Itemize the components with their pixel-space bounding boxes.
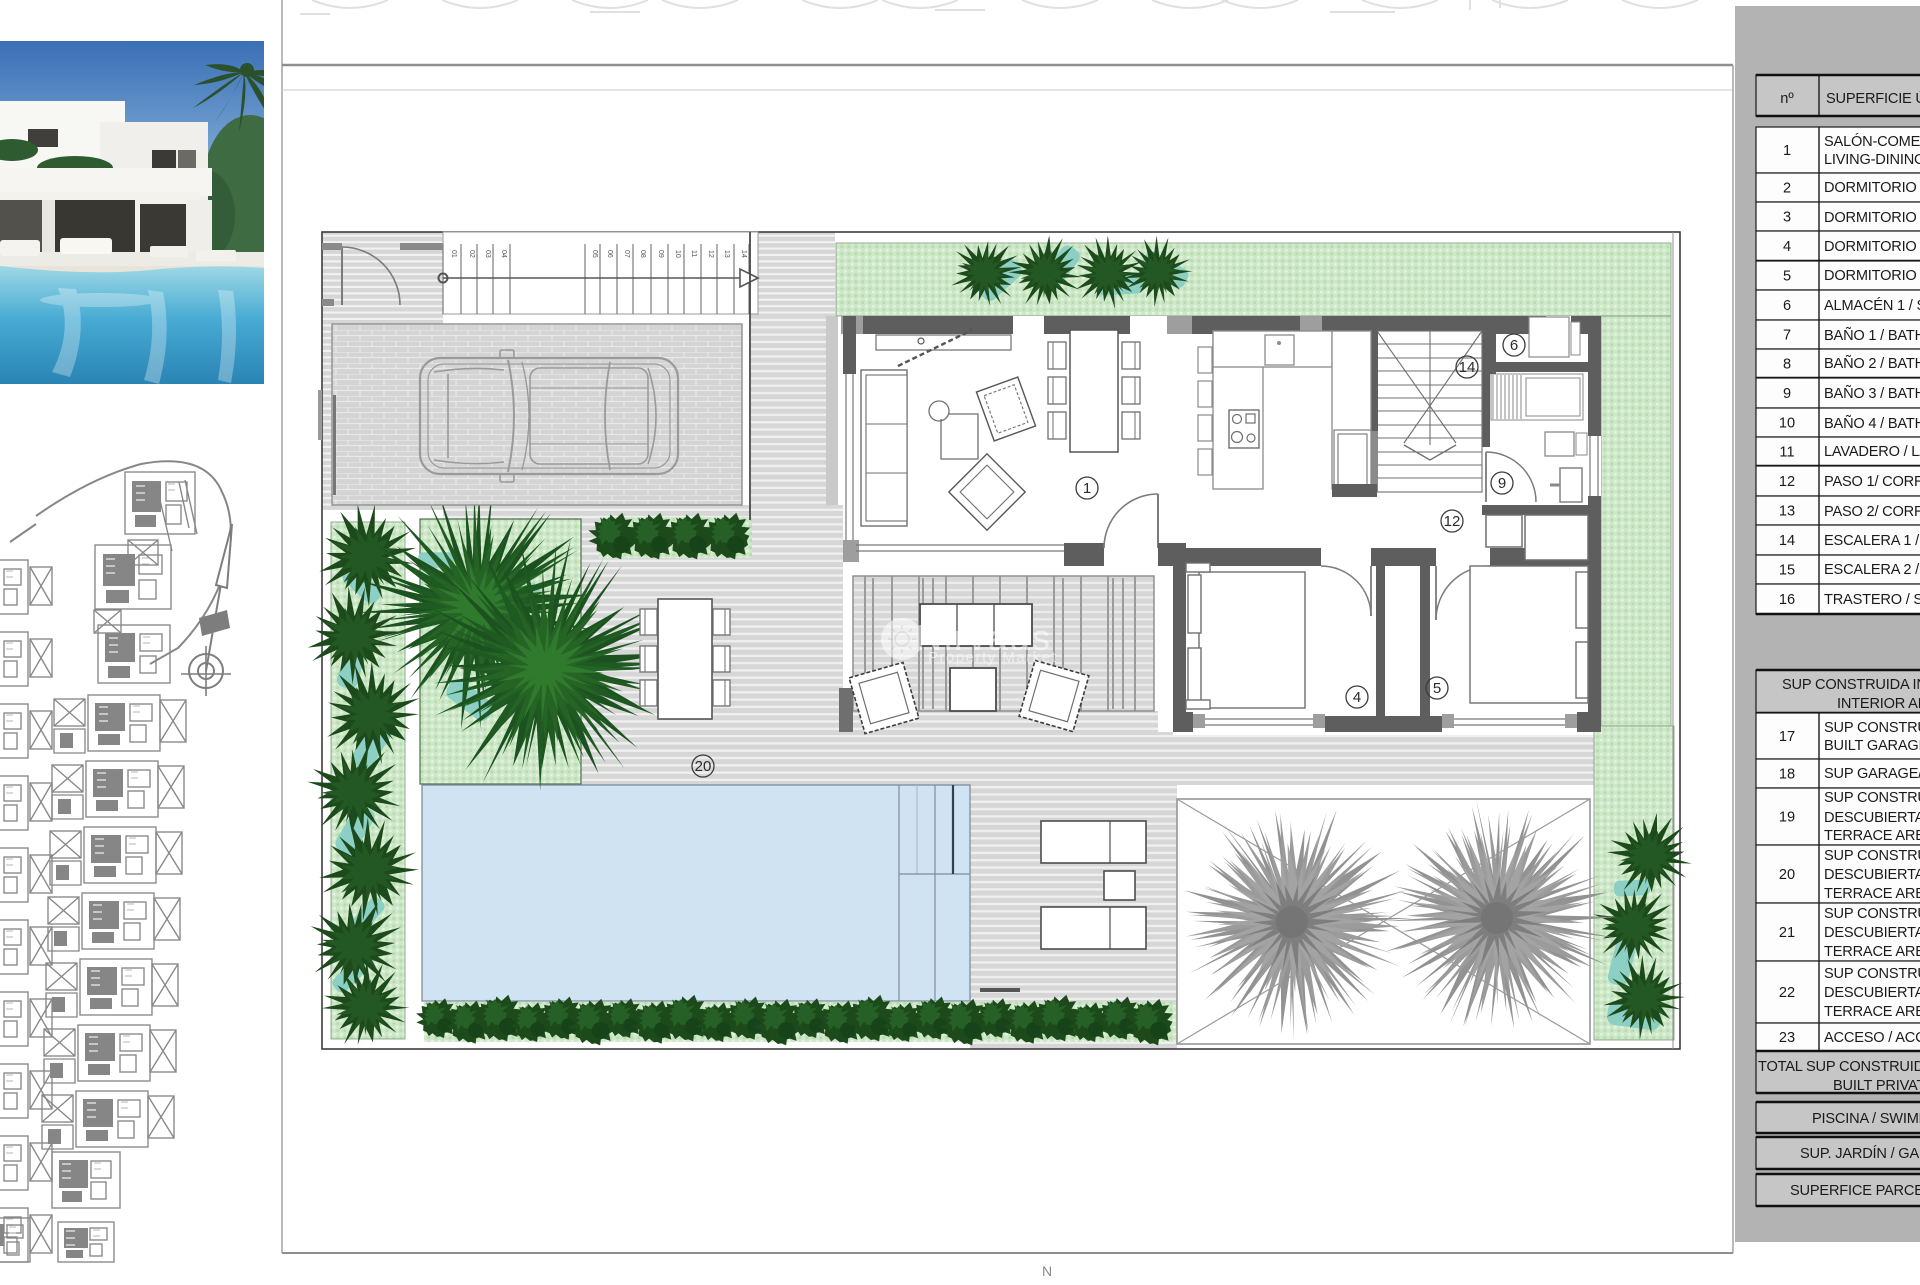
svg-text:TRASTERO / STORAGE: TRASTERO / STORAGE (1824, 592, 1920, 608)
svg-text:01: 01 (450, 250, 457, 258)
svg-text:8: 8 (1783, 357, 1791, 373)
svg-text:12: 12 (1779, 474, 1795, 490)
svg-text:1: 1 (1783, 143, 1791, 159)
svg-text:14: 14 (1459, 359, 1476, 376)
svg-text:15: 15 (1779, 563, 1795, 579)
svg-text:4: 4 (1353, 689, 1361, 706)
svg-text:LIVING-DINING ROOM: LIVING-DINING ROOM (1824, 152, 1920, 168)
svg-text:14: 14 (1779, 533, 1795, 549)
svg-text:3: 3 (1783, 210, 1791, 226)
svg-text:SUP CONSTRUIDA GARAJE /: SUP CONSTRUIDA GARAJE / (1824, 720, 1920, 736)
svg-text:05: 05 (591, 250, 598, 258)
svg-text:SUPERFICE PARCELA / PLOT AREA: SUPERFICE PARCELA / PLOT AREA (1790, 1183, 1920, 1199)
svg-text:ALMACÉN 1 / STORAGE 1: ALMACÉN 1 / STORAGE 1 (1824, 297, 1920, 314)
svg-text:10: 10 (674, 250, 681, 258)
svg-text:TOTAL SUP CONSTRUIDA PRIVADA /: TOTAL SUP CONSTRUIDA PRIVADA / (1758, 1059, 1920, 1075)
svg-text:DESCUBIERTA 2 / UNCOVERED: DESCUBIERTA 2 / UNCOVERED (1824, 867, 1920, 883)
svg-text:12: 12 (707, 250, 714, 258)
svg-text:11: 11 (1779, 445, 1794, 461)
svg-text:DESCUBIERTA 4 / UNCOVERED: DESCUBIERTA 4 / UNCOVERED (1824, 985, 1920, 1001)
svg-text:SUP GARAGE/ GARAGE AREA: SUP GARAGE/ GARAGE AREA (1824, 766, 1920, 782)
svg-text:SUPERFICIE ÚTIL / USEFUL AREA: SUPERFICIE ÚTIL / USEFUL AREA (1826, 90, 1920, 107)
svg-text:13: 13 (723, 250, 730, 258)
svg-text:BAÑO 3 / BATHROOM 3: BAÑO 3 / BATHROOM 3 (1824, 385, 1920, 402)
svg-text:TERRACE AREA 3: TERRACE AREA 3 (1824, 944, 1920, 960)
svg-text:ESCALERA 2 / STAIRS 2: ESCALERA 2 / STAIRS 2 (1824, 562, 1920, 578)
svg-text:SUP CONSTRUIDA TERRAZA: SUP CONSTRUIDA TERRAZA (1824, 790, 1920, 806)
svg-text:14: 14 (740, 250, 747, 258)
svg-text:16: 16 (1779, 592, 1795, 608)
svg-text:17: 17 (1779, 729, 1795, 745)
svg-text:22: 22 (1779, 985, 1795, 1001)
svg-text:08: 08 (639, 250, 646, 258)
svg-text:20: 20 (695, 758, 712, 775)
svg-text:2: 2 (1783, 181, 1791, 197)
svg-text:20: 20 (1779, 867, 1795, 883)
svg-text:5: 5 (1783, 269, 1791, 285)
svg-text:TERRACE AREA 1: TERRACE AREA 1 (1824, 828, 1920, 844)
svg-text:SALÓN-COMEDOR /: SALÓN-COMEDOR / (1824, 133, 1920, 150)
svg-text:03: 03 (484, 250, 491, 258)
svg-text:BAÑO 1 / BATHROOM 1: BAÑO 1 / BATHROOM 1 (1824, 327, 1920, 344)
svg-text:BAÑO 4 / BATHROOM 4: BAÑO 4 / BATHROOM 4 (1824, 415, 1920, 432)
svg-text:PISCINA / SWIMMING POOL: PISCINA / SWIMMING POOL (1812, 1111, 1920, 1127)
svg-text:PASO 2/ CORRIDOR 2: PASO 2/ CORRIDOR 2 (1824, 504, 1920, 520)
svg-text:19: 19 (1779, 810, 1795, 826)
svg-text:07: 07 (623, 250, 630, 258)
svg-text:4: 4 (1783, 239, 1791, 255)
svg-text:SUP CONSTRUIDA TERRAZA: SUP CONSTRUIDA TERRAZA (1824, 848, 1920, 864)
svg-text:9: 9 (1783, 386, 1791, 402)
svg-text:DORMITORIO 1 / BEDROOM 1: DORMITORIO 1 / BEDROOM 1 (1824, 180, 1920, 196)
svg-text:PASO 1/ CORRIDOR 1: PASO 1/ CORRIDOR 1 (1824, 474, 1920, 490)
svg-text:DORMITORIO 2 / BEDROOM 2: DORMITORIO 2 / BEDROOM 2 (1824, 210, 1920, 226)
svg-text:DESCUBIERTA 1 / UNCOVERED: DESCUBIERTA 1 / UNCOVERED (1824, 810, 1920, 826)
svg-text:10: 10 (1779, 416, 1795, 432)
svg-text:BUILT PRIVATE AREA: BUILT PRIVATE AREA (1833, 1078, 1920, 1094)
svg-text:SUP CONSTRUIDA TERRAZA: SUP CONSTRUIDA TERRAZA (1824, 906, 1920, 922)
svg-text:SUP. JARDÍN / GARDEN AREA: SUP. JARDÍN / GARDEN AREA (1800, 1145, 1920, 1162)
svg-text:11: 11 (690, 250, 697, 257)
svg-text:INTERIOR AREA: INTERIOR AREA (1837, 696, 1920, 712)
svg-text:ESCALERA 1 / STAIRS 1: ESCALERA 1 / STAIRS 1 (1824, 533, 1920, 549)
svg-text:LAVADERO / LAUNDRY: LAVADERO / LAUNDRY (1824, 444, 1920, 460)
svg-text:21: 21 (1779, 925, 1795, 941)
svg-text:9: 9 (1498, 475, 1506, 492)
svg-text:DORMITORIO 4 / BEDROOM 4: DORMITORIO 4 / BEDROOM 4 (1824, 268, 1920, 284)
svg-text:DESCUBIERTA 3 / UNCOVERED: DESCUBIERTA 3 / UNCOVERED (1824, 925, 1920, 941)
svg-text:5: 5 (1433, 680, 1441, 697)
svg-text:SUP CONSTRUIDA INTERIOR /: SUP CONSTRUIDA INTERIOR / (1782, 677, 1920, 693)
svg-text:13: 13 (1779, 504, 1795, 520)
svg-text:6: 6 (1510, 337, 1518, 354)
svg-text:12: 12 (1444, 513, 1461, 530)
svg-text:ACCESO / ACCESS: ACCESO / ACCESS (1824, 1030, 1920, 1046)
svg-text:02: 02 (468, 250, 475, 258)
svg-text:04: 04 (500, 250, 507, 258)
svg-text:6: 6 (1783, 298, 1791, 314)
svg-text:18: 18 (1779, 767, 1795, 783)
svg-text:TERRACE AREA 2: TERRACE AREA 2 (1824, 886, 1920, 902)
svg-text:N: N (1042, 1263, 1052, 1279)
svg-text:nº: nº (1780, 91, 1794, 107)
svg-text:SUP CONSTRUIDA TERRAZA: SUP CONSTRUIDA TERRAZA (1824, 966, 1920, 982)
svg-text:7: 7 (1783, 328, 1791, 344)
svg-text:BUILT GARAGE AREA: BUILT GARAGE AREA (1824, 738, 1920, 754)
svg-text:1: 1 (1083, 480, 1091, 497)
svg-text:BAÑO 2 / BATHROOM 2: BAÑO 2 / BATHROOM 2 (1824, 355, 1920, 372)
svg-text:23: 23 (1779, 1030, 1795, 1046)
svg-text:Property Market: Property Market (928, 649, 1057, 666)
svg-text:DORMITORIO 3 / BEDROOM 3: DORMITORIO 3 / BEDROOM 3 (1824, 239, 1920, 255)
svg-text:TERRACE AREA 4: TERRACE AREA 4 (1824, 1004, 1920, 1020)
svg-text:09: 09 (657, 250, 664, 258)
svg-text:06: 06 (606, 250, 613, 258)
